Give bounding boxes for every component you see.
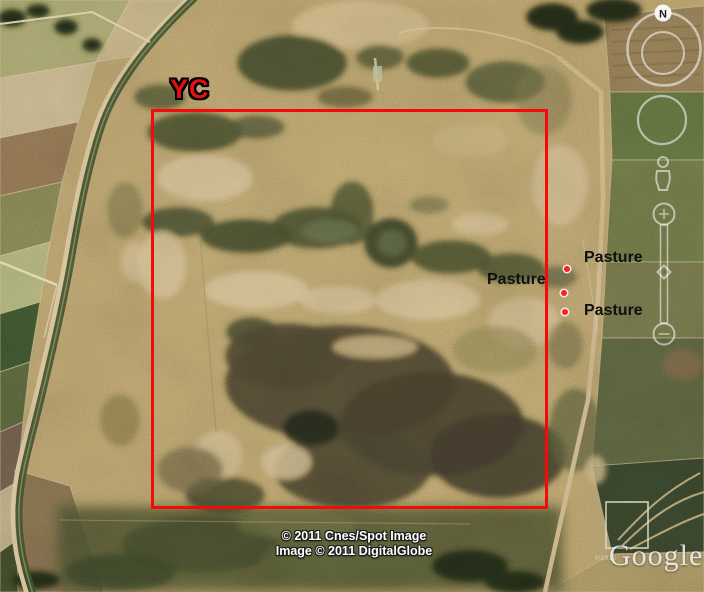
move-joystick[interactable] — [638, 96, 686, 144]
pasture-marker-dot[interactable] — [562, 309, 568, 315]
imagery-attribution: © 2011 Cnes/Spot Image Image © 2011 Digi… — [276, 529, 433, 559]
google-watermark-logo: Google — [609, 539, 703, 573]
zoom-track[interactable] — [661, 225, 668, 323]
site-label-yc: YC — [170, 74, 210, 105]
north-letter: N — [659, 9, 667, 21]
attribution-line1: © 2011 Cnes/Spot Image — [276, 529, 433, 544]
pasture-marker-dot[interactable] — [561, 290, 567, 296]
look-joystick[interactable] — [642, 32, 684, 74]
pasture-marker-dot[interactable] — [564, 266, 570, 272]
pegman-icon[interactable] — [656, 157, 670, 190]
study-area-rectangle — [151, 109, 548, 509]
plus-icon — [659, 209, 669, 219]
navigation-controls: N — [615, 0, 704, 360]
google-earth-view: YC PasturePasturePasture © 2011 Cnes/Spo… — [0, 0, 704, 592]
north-indicator[interactable]: N — [655, 5, 672, 22]
zoom-slider[interactable] — [654, 204, 675, 345]
attribution-line2: Image © 2011 DigitalGlobe — [276, 544, 433, 559]
pasture-marker-label[interactable]: Pasture — [487, 271, 546, 289]
watermark-copyright: ©2010 — [595, 555, 617, 562]
zoom-handle[interactable] — [658, 266, 671, 279]
